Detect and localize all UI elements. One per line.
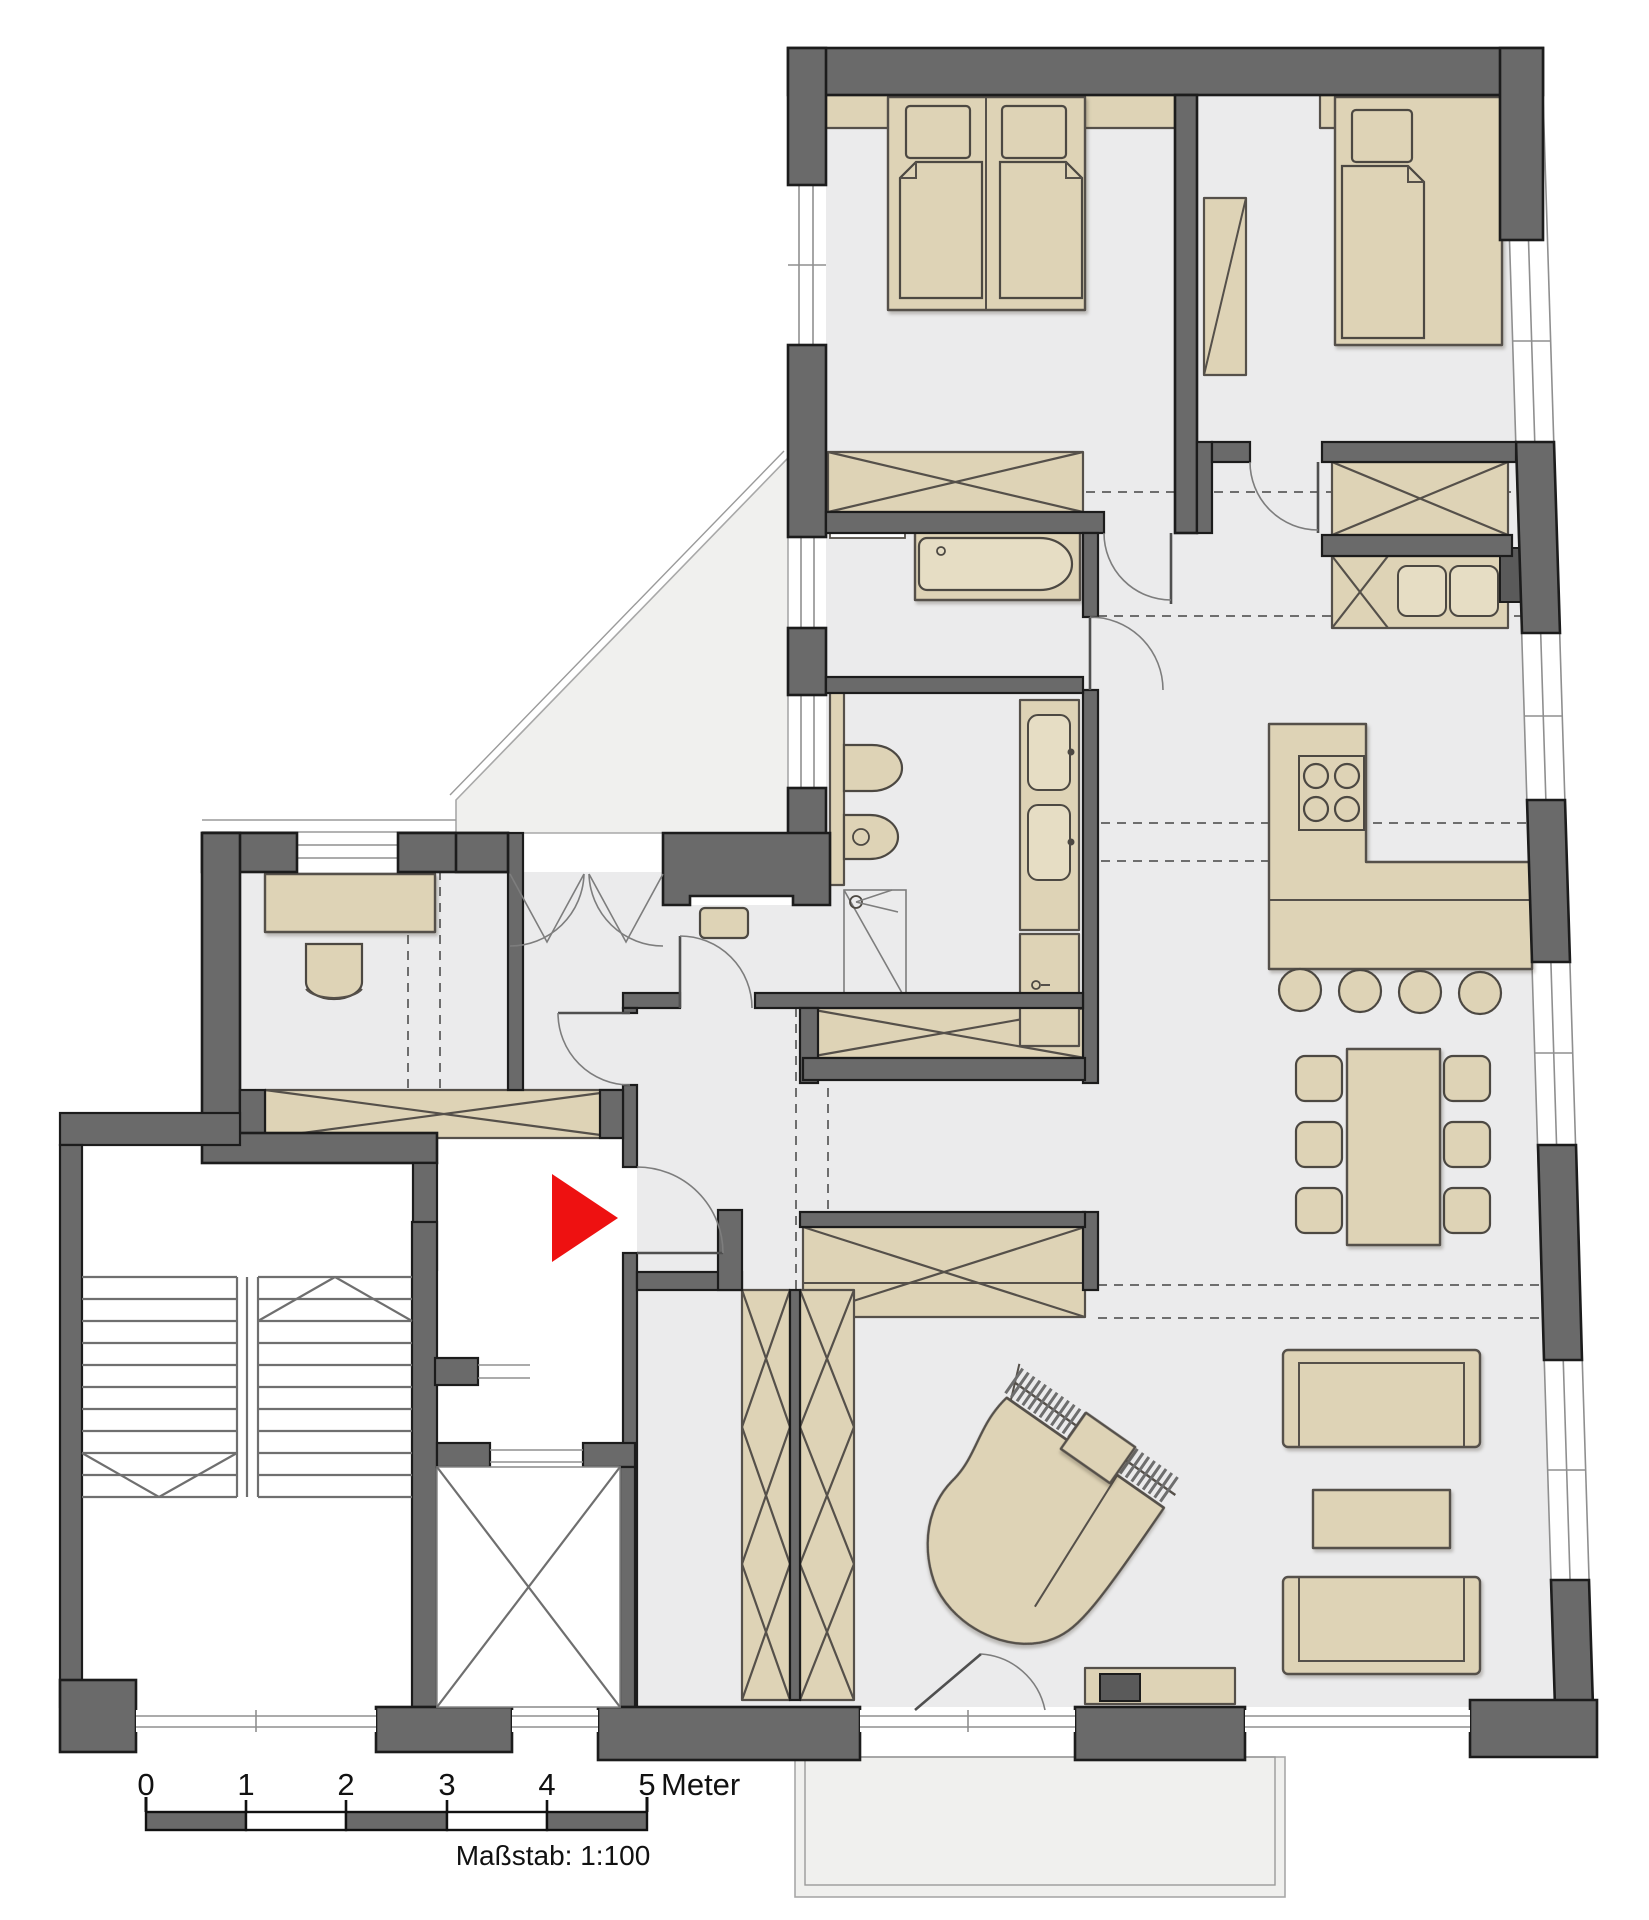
toilet <box>844 745 902 791</box>
scale-tick-4: 4 <box>538 1767 555 1802</box>
wardrobe-office <box>265 1090 623 1138</box>
office-desk <box>265 874 435 932</box>
scale-tick-0: 0 <box>137 1767 154 1802</box>
bathtub <box>919 538 1072 590</box>
dining-area <box>1296 1049 1490 1245</box>
elevator <box>437 1467 620 1707</box>
appliance-counter <box>1332 548 1530 628</box>
dining-table <box>1347 1049 1440 1245</box>
balcony-floor <box>795 1757 1285 1897</box>
mattress <box>1342 166 1424 338</box>
scale-tick-5: 5 <box>638 1767 655 1802</box>
hall-pocket-floor <box>523 872 637 1090</box>
washer <box>1398 566 1446 616</box>
pillow <box>1352 110 1412 162</box>
scale-tick-3: 3 <box>438 1767 455 1802</box>
scale-tick-2: 2 <box>337 1767 354 1802</box>
scale-tick-1: 1 <box>237 1767 254 1802</box>
sofa-south <box>1283 1577 1480 1674</box>
scale-caption: Maßstab: 1:100 <box>456 1840 651 1871</box>
stairwell <box>82 1277 620 1707</box>
terrace-floor <box>456 458 788 833</box>
floor-plan-drawing: 0 1 2 3 4 5 Meter Maßstab: 1:100 <box>0 0 1649 1920</box>
vanity-cabinet <box>1020 934 1079 1046</box>
coffee-table <box>1313 1490 1450 1548</box>
floor-plan-page: 0 1 2 3 4 5 Meter Maßstab: 1:100 <box>0 0 1649 1920</box>
wardrobe-bedroom2 <box>1332 462 1508 535</box>
entrance-arrow-icon <box>552 1174 618 1262</box>
scale-unit: Meter <box>661 1767 740 1802</box>
scale-bar-segments <box>146 1797 647 1830</box>
scale-bar: 0 1 2 3 4 5 Meter Maßstab: 1:100 <box>137 1767 740 1871</box>
stair-treads <box>82 1277 412 1497</box>
tv <box>1100 1674 1140 1701</box>
sofa-north <box>1283 1350 1480 1447</box>
door-mat <box>700 908 748 938</box>
pillow <box>1002 106 1066 158</box>
pillow <box>906 106 970 158</box>
mattress <box>1000 162 1082 298</box>
bidet <box>844 815 898 859</box>
sideboard-tv <box>1085 1668 1235 1704</box>
wardrobe-column-west <box>742 1290 790 1700</box>
dryer <box>1450 566 1498 616</box>
office-chair <box>306 944 362 999</box>
plumbing-wall <box>830 683 844 885</box>
wardrobe-column-east <box>800 1290 854 1700</box>
mattress <box>900 162 982 298</box>
wardrobe-bedroom1 <box>828 452 1083 512</box>
